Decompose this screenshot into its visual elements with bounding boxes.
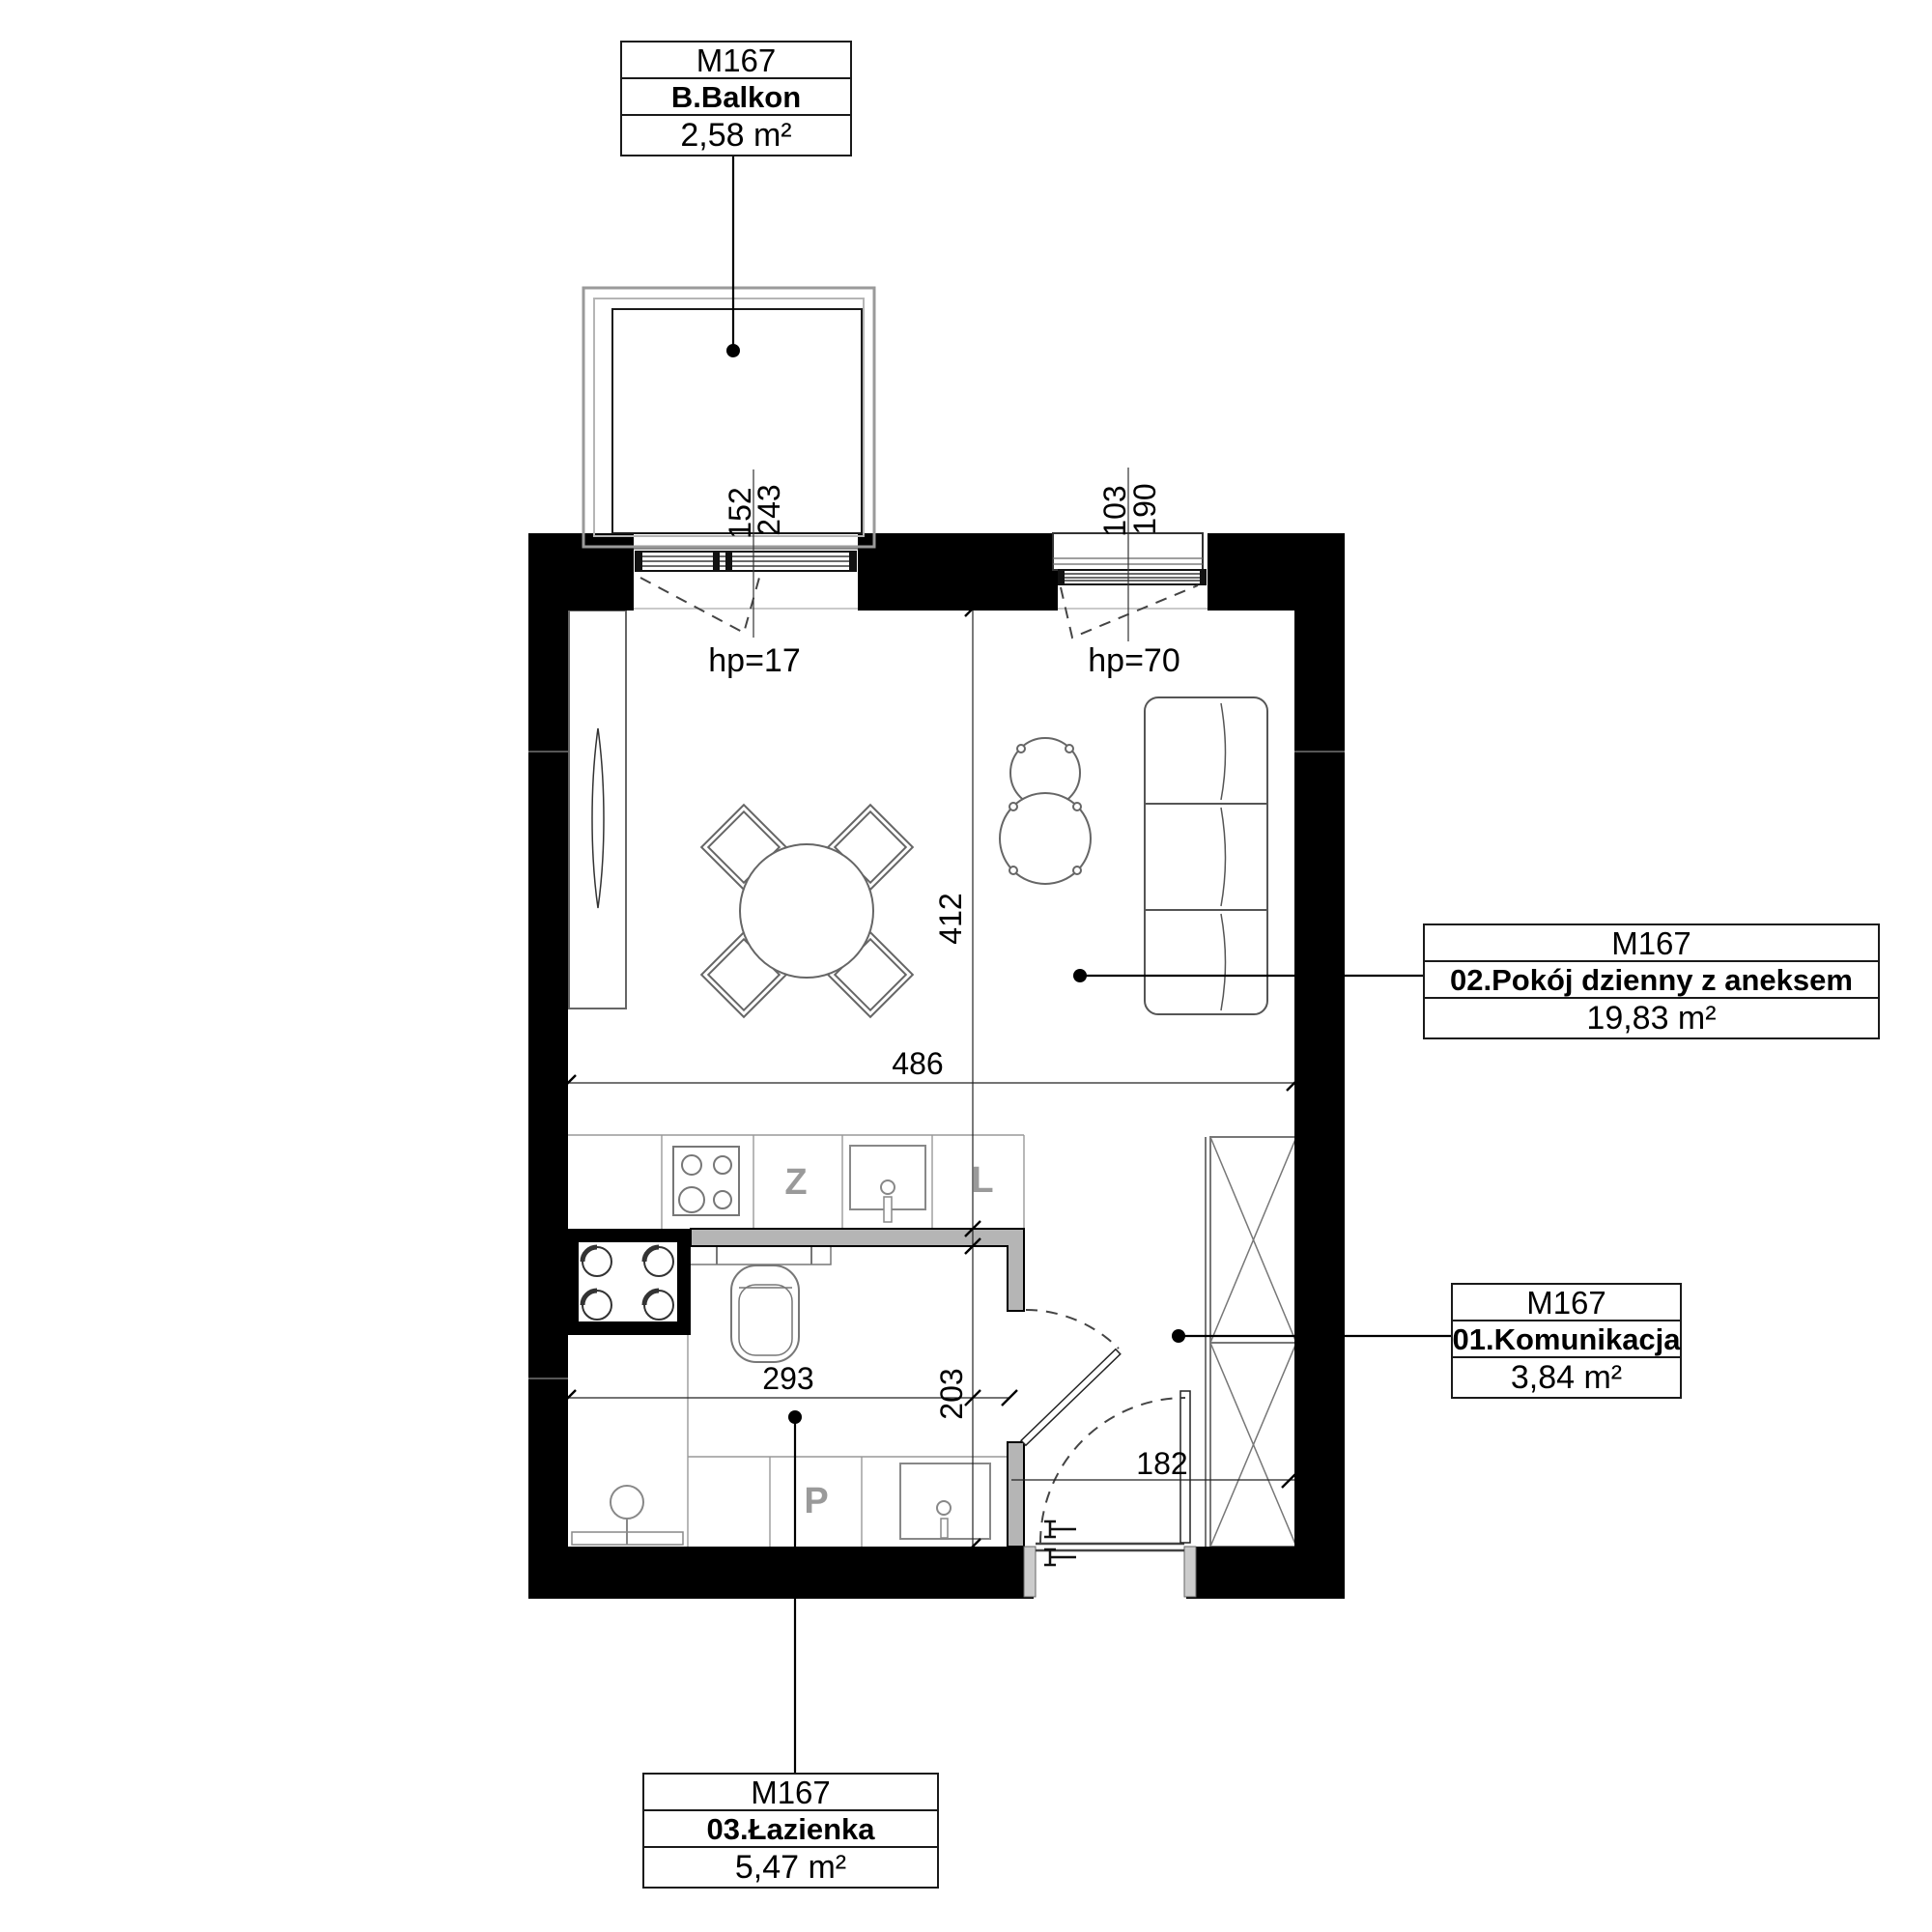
sill-height-balcony-window: hp=17 <box>708 642 801 679</box>
dim-balcony-window-total: 243 <box>752 484 786 535</box>
room-name: 02.Pokój dzienny z aneksem <box>1425 960 1878 997</box>
sofa <box>1145 697 1267 1014</box>
unit-label-bathroom: M167 03.Łazienka 5,47 m² <box>642 1773 939 1889</box>
fridge-letter: L <box>971 1160 993 1201</box>
room-area: 3,84 m² <box>1453 1356 1680 1397</box>
dim-bath-width: 293 <box>762 1361 813 1396</box>
dining-table <box>740 844 873 978</box>
room-name: 03.Łazienka <box>644 1809 937 1846</box>
room-area: 5,47 m² <box>644 1846 937 1887</box>
installation-shaft <box>565 1229 691 1335</box>
unit-label-balcony: M167 B.Balkon 2,58 m² <box>620 41 852 156</box>
unit-label-living-room: M167 02.Pokój dzienny z aneksem 19,83 m² <box>1423 923 1880 1039</box>
dim-living-width: 486 <box>892 1046 943 1081</box>
unit-code: M167 <box>1453 1285 1680 1320</box>
sill-height-window: hp=70 <box>1088 642 1180 679</box>
room-area: 19,83 m² <box>1425 997 1878 1037</box>
dim-living-depth: 412 <box>933 893 968 944</box>
washer-letter: P <box>804 1481 828 1521</box>
toilet <box>684 1246 831 1362</box>
floor-plan-page: 486 412 293 203 182 152 243 103 190 hp=1… <box>0 0 1932 1932</box>
dim-hall-width: 182 <box>1136 1446 1187 1481</box>
dim-bath-depth: 203 <box>934 1368 969 1419</box>
dim-window-total: 190 <box>1127 483 1162 534</box>
unit-label-hall: M167 01.Komunikacja 3,84 m² <box>1451 1283 1682 1399</box>
unit-code: M167 <box>622 43 850 77</box>
wardrobe <box>1206 1137 1296 1547</box>
room-name: 01.Komunikacja <box>1453 1320 1680 1356</box>
unit-code: M167 <box>1425 925 1878 960</box>
side-tables <box>1000 738 1091 884</box>
room-area: 2,58 m² <box>622 114 850 155</box>
dishwasher-letter: Z <box>784 1162 807 1203</box>
shower-tray <box>900 1463 990 1539</box>
cooktop <box>673 1147 739 1215</box>
unit-code: M167 <box>644 1775 937 1809</box>
bathroom-door <box>1021 1310 1121 1445</box>
kitchen-sink <box>850 1146 925 1222</box>
sideboard-cabinet <box>569 611 626 1009</box>
washbasin <box>572 1486 683 1545</box>
room-name: B.Balkon <box>622 77 850 114</box>
